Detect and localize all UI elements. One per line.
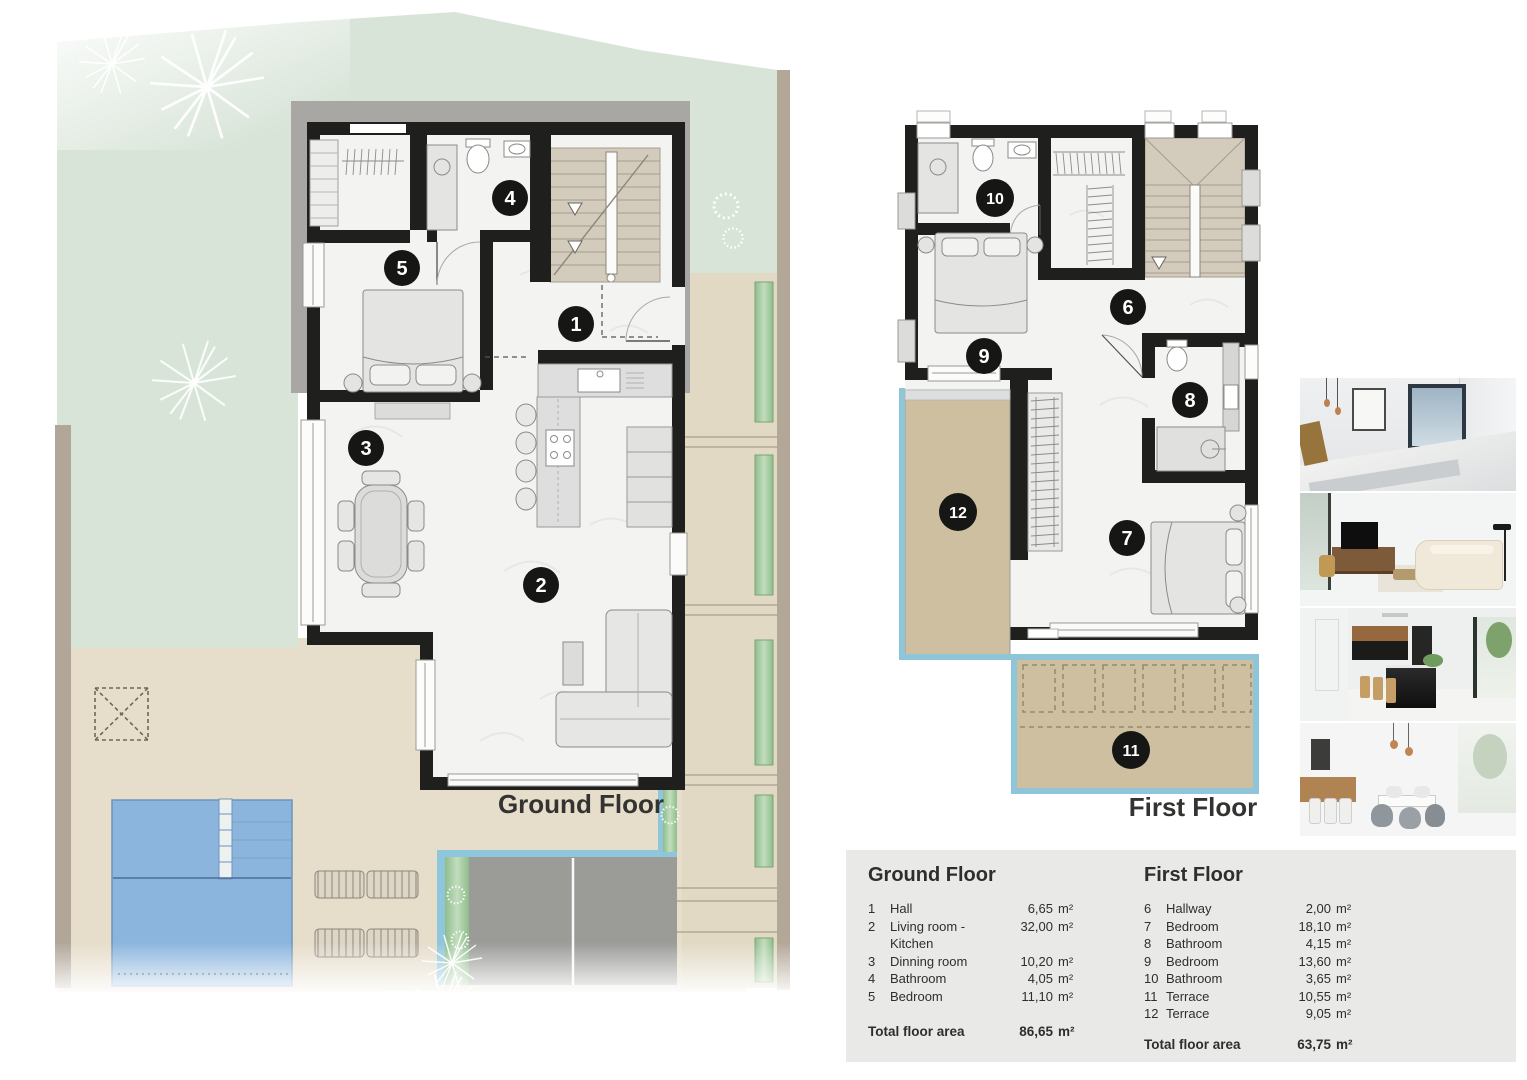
row-unit: m² (1331, 935, 1364, 953)
coffee-table-icon (563, 642, 583, 685)
shower-icon (427, 145, 457, 230)
row-num: 3 (868, 953, 890, 971)
legend-first-floor-section: First Floor 6 Hallway 2,00 m² 7 Bedroom … (1144, 864, 1364, 1052)
total-label: Total floor area (868, 1024, 1005, 1039)
stool (1360, 676, 1370, 699)
plant (1423, 654, 1442, 666)
legend-row-bedroom7: 7 Bedroom 18,10 m² (1144, 918, 1364, 936)
legend-row-hall: 1 Hall 6,65 m² (868, 900, 1086, 918)
legend-row-bedroom-gf: 5 Bedroom 11,10 m² (868, 988, 1086, 1006)
upper-cabinets-wood (1352, 626, 1408, 641)
row-area: 11,10 (1005, 988, 1053, 1006)
tv-sideboard (1332, 547, 1395, 574)
bar-stool (1324, 798, 1337, 825)
legend-row-bathroom-gf: 4 Bathroom 4,05 m² (868, 970, 1086, 988)
interior-photo-kitchen (1300, 608, 1516, 721)
sink-icon (1224, 385, 1238, 409)
toilet-icon (1167, 340, 1187, 371)
staircase (1145, 138, 1245, 277)
legend-ground-floor-section: Ground Floor 1 Hall 6,65 m² 2 Living roo… (868, 864, 1086, 1039)
svg-text:11: 11 (1123, 743, 1140, 760)
svg-text:6: 6 (1122, 297, 1133, 319)
door-outline (1315, 619, 1339, 691)
first-floor-title: First Floor (1117, 792, 1269, 823)
total-area: 86,65 (1005, 1024, 1053, 1039)
row-name: Bathroom (1166, 935, 1283, 953)
sofa-cushion (1430, 545, 1495, 554)
row-unit: m² (1331, 1005, 1364, 1023)
gold-cabinet (1319, 555, 1334, 576)
legend-first-total: Total floor area 63,75 m² (1144, 1037, 1364, 1052)
room-marker-8: 8 (1172, 382, 1208, 418)
foliage (1486, 622, 1512, 658)
svg-text:1: 1 (570, 314, 581, 336)
row-area: 6,65 (1005, 900, 1053, 918)
pendant-cord (1408, 723, 1409, 748)
row-area: 4,15 (1283, 935, 1331, 953)
row-num: 11 (1144, 988, 1166, 1006)
wardrobe-icon (1028, 393, 1062, 551)
toilet-icon (466, 139, 490, 173)
row-num: 10 (1144, 970, 1166, 988)
tv-icon (1341, 522, 1378, 549)
bar-stool (1339, 798, 1352, 825)
row-unit: m² (1331, 918, 1364, 936)
row-num: 5 (868, 988, 890, 1006)
row-name: Terrace (1166, 988, 1283, 1006)
row-area: 13,60 (1283, 953, 1331, 971)
room-marker-12: 12 (939, 493, 977, 531)
staircase (550, 148, 660, 282)
interior-photo-dining-room (1300, 723, 1516, 836)
wall-niche (350, 124, 406, 133)
svg-text:10: 10 (986, 191, 1004, 208)
row-area: 32,00 (1005, 918, 1053, 953)
pendant-cord (1326, 378, 1327, 401)
interior-photo-living-room (1300, 493, 1516, 606)
row-unit: m² (1053, 953, 1086, 971)
terrace-11 (1012, 655, 1258, 793)
pendant-shade-icon (1405, 747, 1413, 756)
ground-floor-title: Ground Floor (495, 789, 667, 820)
row-unit: m² (1331, 970, 1364, 988)
row-num: 4 (868, 970, 890, 988)
row-unit: m² (1053, 918, 1086, 953)
row-area: 18,10 (1283, 918, 1331, 936)
svg-text:2: 2 (535, 575, 546, 597)
legend-row-bedroom9: 9 Bedroom 13,60 m² (1144, 953, 1364, 971)
svg-text:5: 5 (396, 258, 407, 280)
row-unit: m² (1053, 988, 1086, 1006)
pendant-cord (1337, 378, 1338, 409)
kitchen-sink-icon (578, 369, 620, 392)
row-area: 10,20 (1005, 953, 1053, 971)
row-name: Bedroom (890, 988, 1005, 1006)
legend-first-title: First Floor (1144, 864, 1364, 887)
boundary-wall-right (777, 70, 790, 990)
sink-icon (504, 141, 530, 157)
room-marker-7: 7 (1109, 520, 1145, 556)
double-bed-icon (918, 233, 1043, 333)
total-label: Total floor area (1144, 1037, 1283, 1052)
dining-chair (1425, 804, 1444, 827)
legend-row-terrace12: 12 Terrace 9,05 m² (1144, 1005, 1364, 1023)
row-area: 10,55 (1283, 988, 1331, 1006)
pendant-bulb-icon (1335, 407, 1341, 415)
lower-cabinets-black (1352, 641, 1408, 660)
row-unit: m² (1053, 970, 1086, 988)
sink-icon (1008, 142, 1036, 158)
row-area: 2,00 (1283, 900, 1331, 918)
floor-lamp-head-icon (1493, 524, 1510, 531)
room-marker-3: 3 (348, 430, 384, 466)
dining-chair (1371, 804, 1393, 827)
room-marker-5: 5 (384, 250, 420, 286)
total-area: 63,75 (1283, 1037, 1331, 1052)
boundary-wall-left (55, 425, 71, 988)
pool-ladder-icon (219, 799, 232, 879)
svg-text:12: 12 (949, 505, 967, 522)
row-num: 2 (868, 918, 890, 953)
stool (1373, 677, 1383, 700)
row-name: Dinning room (890, 953, 1005, 971)
pendant-shade-icon (1390, 740, 1398, 749)
row-unit: m² (1053, 900, 1086, 918)
dining-chair-light (1414, 786, 1429, 797)
row-name: Hall (890, 900, 1005, 918)
room-marker-10: 10 (976, 179, 1014, 217)
legend-ground-title: Ground Floor (868, 864, 1086, 887)
shower-icon (918, 143, 958, 213)
dining-chair-light (1386, 786, 1401, 797)
svg-text:8: 8 (1184, 390, 1195, 412)
legend-row-bathroom10: 10 Bathroom 3,65 m² (1144, 970, 1364, 988)
ground-floor-plan: 1 2 3 4 5 (290, 95, 700, 800)
total-unit: m² (1331, 1037, 1364, 1052)
tall-cabinets (627, 427, 672, 527)
row-name: Terrace (1166, 1005, 1283, 1023)
row-num: 8 (1144, 935, 1166, 953)
svg-text:3: 3 (360, 438, 371, 460)
stool (1386, 678, 1396, 703)
legend-row-living-kitchen: 2 Living room - Kitchen 32,00 m² (868, 918, 1086, 953)
row-name: Bedroom (1166, 918, 1283, 936)
bedroom-art-frame (1352, 388, 1386, 430)
first-floor-plan: 6 7 8 9 10 11 12 (890, 105, 1265, 800)
room-marker-11: 11 (1112, 731, 1150, 769)
total-unit: m² (1053, 1024, 1086, 1039)
row-num: 7 (1144, 918, 1166, 936)
row-unit: m² (1331, 988, 1364, 1006)
row-unit: m² (1331, 953, 1364, 971)
row-name: Hallway (1166, 900, 1283, 918)
legend-row-bathroom8: 8 Bathroom 4,15 m² (1144, 935, 1364, 953)
row-name: Living room - Kitchen (890, 918, 1005, 953)
row-num: 12 (1144, 1005, 1166, 1023)
poster-frame (1311, 739, 1330, 771)
toilet-icon (972, 139, 994, 171)
row-name: Bathroom (1166, 970, 1283, 988)
dining-chair (1399, 807, 1421, 830)
hob-icon (546, 430, 574, 466)
svg-text:4: 4 (504, 188, 516, 210)
row-num: 6 (1144, 900, 1166, 918)
row-unit: m² (1331, 900, 1364, 918)
row-area: 3,65 (1283, 970, 1331, 988)
floorplan-page: 1 2 3 4 5 (0, 0, 1527, 1080)
row-name: Bathroom (890, 970, 1005, 988)
legend-row-hallway: 6 Hallway 2,00 m² (1144, 900, 1364, 918)
row-area: 4,05 (1005, 970, 1053, 988)
room-marker-9: 9 (966, 338, 1002, 374)
room-marker-4: 4 (492, 180, 528, 216)
legend-ground-total: Total floor area 86,65 m² (868, 1024, 1086, 1039)
pendant-cord (1393, 723, 1394, 741)
row-num: 9 (1144, 953, 1166, 971)
ceiling-vent (1382, 613, 1408, 618)
svg-text:9: 9 (978, 346, 989, 368)
room-marker-6: 6 (1110, 289, 1146, 325)
room-marker-1: 1 (558, 306, 594, 342)
row-num: 1 (868, 900, 890, 918)
floor-lamp-pole (1504, 527, 1506, 581)
legend-row-terrace11: 11 Terrace 10,55 m² (1144, 988, 1364, 1006)
svg-text:7: 7 (1121, 528, 1132, 550)
row-name: Bedroom (1166, 953, 1283, 971)
bar-stool (1309, 798, 1322, 825)
row-area: 9,05 (1283, 1005, 1331, 1023)
interior-photo-bedroom (1300, 378, 1516, 491)
legend-panel: Ground Floor 1 Hall 6,65 m² 2 Living roo… (846, 850, 1516, 1062)
fade-bottom (40, 942, 800, 997)
legend-row-dinning: 3 Dinning room 10,20 m² (868, 953, 1086, 971)
room-marker-2: 2 (523, 567, 559, 603)
